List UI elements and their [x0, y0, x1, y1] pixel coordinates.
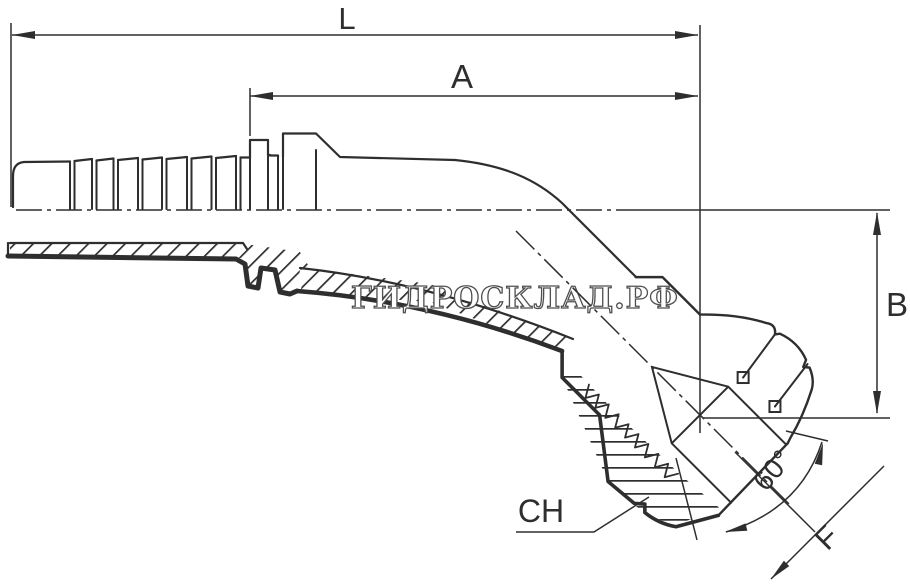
label-b: B — [886, 286, 908, 323]
arrow-l-left — [12, 31, 35, 39]
arrow-b-top — [873, 212, 881, 235]
arrow-f — [768, 561, 789, 582]
nut-upper-silhouette — [629, 231, 841, 443]
collar-verticals — [250, 150, 316, 209]
hex-corner-edges — [737, 333, 812, 408]
fitting-diagram: ГИДРОСКЛАД.РФ — [0, 0, 910, 588]
label-a: A — [451, 58, 473, 95]
fitting-outline — [8, 134, 636, 353]
watermark-text: ГИДРОСКЛАД.РФ — [351, 281, 679, 316]
collar-steps — [250, 134, 455, 161]
arrow-l-right — [675, 31, 698, 39]
label-l: L — [338, 1, 355, 36]
label-ch: CH — [518, 493, 564, 529]
arrow-b-bottom — [873, 391, 881, 414]
technical-drawing-page: ГИДРОСКЛАД.РФ — [0, 0, 910, 588]
swivel-nut-group — [520, 231, 843, 554]
arrow-angle-bottom — [724, 523, 747, 535]
f-dimension-line — [771, 466, 884, 579]
mask-rectangle — [0, 363, 368, 578]
arrow-a-right — [675, 92, 698, 100]
arrow-a-left — [250, 92, 273, 100]
shank-barb-ribs — [70, 156, 241, 209]
label-cone-angle: 60° — [747, 444, 798, 496]
shank-top-edge — [13, 156, 250, 176]
label-f: F — [808, 519, 846, 557]
